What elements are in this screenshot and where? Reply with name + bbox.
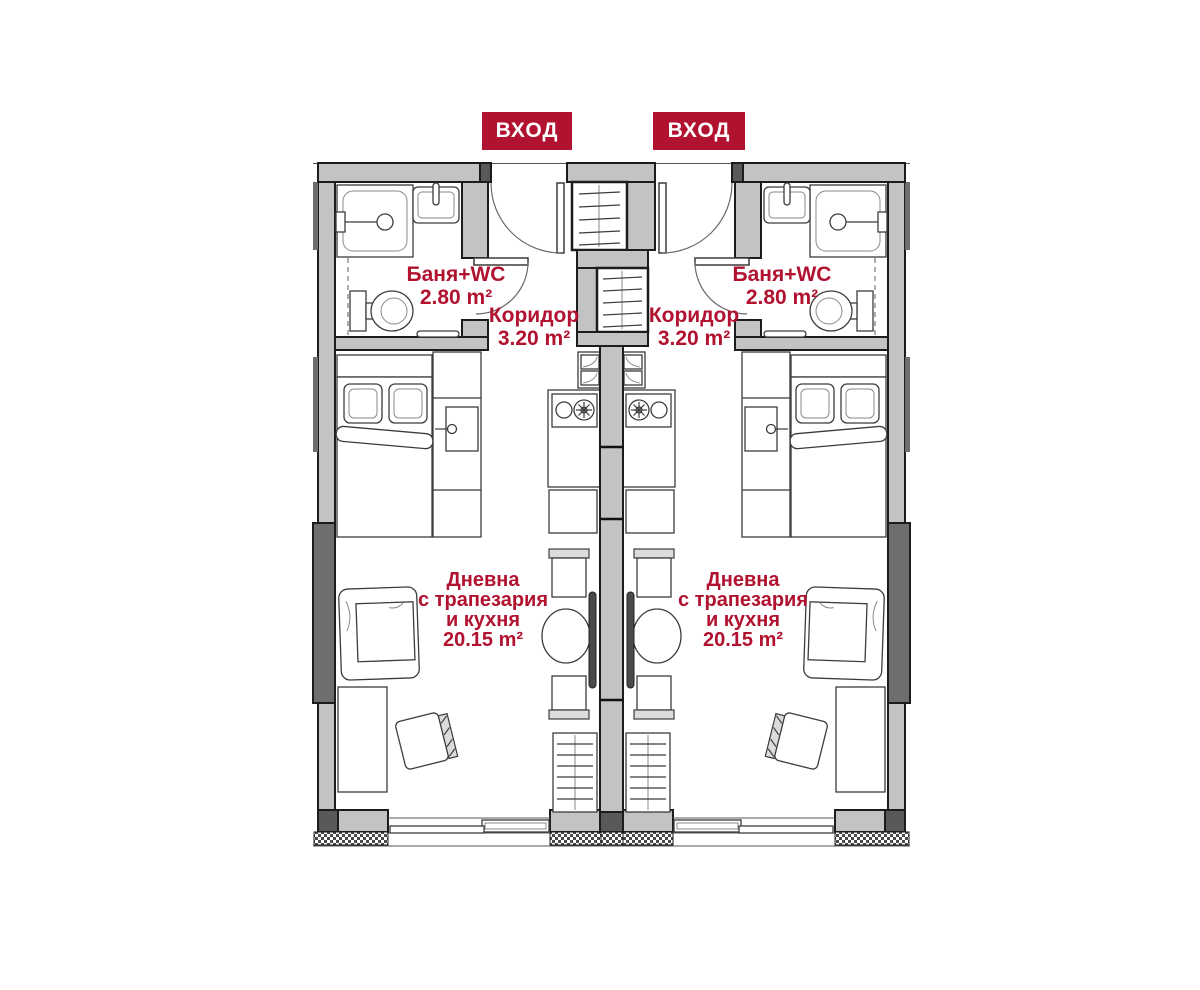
room-area: 3.20 m² (489, 327, 579, 350)
room-area: 2.80 m² (733, 286, 832, 309)
room-area: 20.15 m² (678, 630, 808, 650)
room-label-corridor-left: Коридор 3.20 m² (489, 304, 579, 350)
floor-plan-drawing (0, 0, 1200, 990)
floor-plan-canvas: ВХОД ВХОД Баня+WC 2.80 m² Коридор 3.20 m… (0, 0, 1200, 990)
room-name: Дневна (418, 570, 548, 590)
shaft-upper (572, 182, 627, 250)
room-name: Баня+WC (733, 263, 832, 286)
room-name: с трапезария (678, 590, 808, 610)
room-name: Баня+WC (407, 263, 506, 286)
shaft-lower (597, 268, 648, 332)
room-label-living-left: Дневна с трапезария и кухня 20.15 m² (418, 570, 548, 650)
room-name: Дневна (678, 570, 808, 590)
room-label-bathroom-right: Баня+WC 2.80 m² (733, 263, 832, 309)
room-area: 3.20 m² (649, 327, 739, 350)
room-label-bathroom-left: Баня+WC 2.80 m² (407, 263, 506, 309)
room-label-corridor-right: Коридор 3.20 m² (649, 304, 739, 350)
room-name: с трапезария (418, 590, 548, 610)
entrance-badge-left: ВХОД (482, 112, 572, 150)
room-name: Коридор (649, 304, 739, 327)
room-name: Коридор (489, 304, 579, 327)
entrance-badge-right: ВХОД (653, 112, 745, 150)
room-name: и кухня (418, 610, 548, 630)
party-wall (600, 346, 623, 812)
room-name: и кухня (678, 610, 808, 630)
room-label-living-right: Дневна с трапезария и кухня 20.15 m² (678, 570, 808, 650)
room-area: 20.15 m² (418, 630, 548, 650)
